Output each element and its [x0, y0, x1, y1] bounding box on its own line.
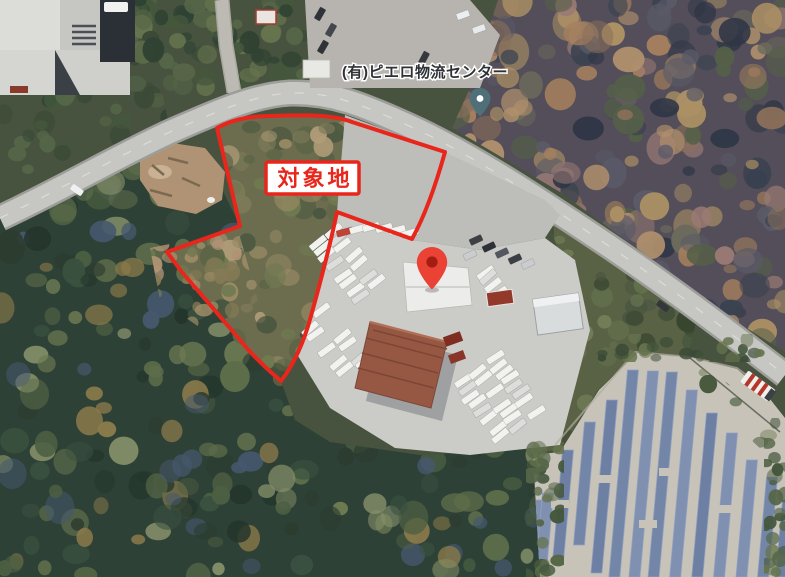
tree-canopy-blob [537, 451, 550, 466]
tree-canopy-blob [697, 25, 712, 35]
tree-canopy-blob [719, 18, 751, 46]
tree-canopy-blob [454, 491, 484, 512]
tree-canopy-blob [264, 263, 285, 288]
tree-canopy-blob [770, 417, 780, 429]
tree-canopy-blob [208, 537, 223, 548]
tree-canopy-blob [486, 490, 509, 506]
tree-canopy-blob [710, 129, 739, 148]
site-label-text: 対象地 [277, 166, 352, 191]
tree-canopy-blob [721, 153, 737, 167]
tree-canopy-blob [548, 482, 561, 491]
tree-canopy-blob [626, 311, 644, 326]
tree-canopy-blob [650, 354, 661, 362]
tree-canopy-blob [94, 497, 109, 514]
tree-canopy-blob [534, 487, 543, 496]
tree-canopy-blob [163, 75, 178, 91]
tree-canopy-blob [314, 136, 334, 157]
tree-canopy-blob [717, 342, 728, 355]
tree-canopy-blob [290, 555, 313, 575]
tree-canopy-blob [49, 485, 62, 498]
tree-canopy-blob [90, 221, 117, 243]
tree-canopy-blob [98, 421, 116, 437]
tree-canopy-blob [739, 64, 766, 89]
tree-canopy-blob [193, 69, 217, 86]
red-white-hut [256, 10, 276, 24]
tree-canopy-blob [65, 442, 93, 462]
tree-canopy-blob [433, 516, 451, 530]
tree-canopy-blob [110, 284, 127, 298]
tree-canopy-blob [660, 225, 672, 233]
tree-canopy-blob [514, 100, 533, 116]
tree-canopy-blob [252, 49, 271, 66]
tree-canopy-blob [768, 452, 781, 463]
tree-canopy-blob [319, 123, 336, 134]
tree-canopy-blob [511, 136, 539, 160]
tree-canopy-blob [519, 71, 543, 99]
gray-building [533, 293, 584, 335]
tree-canopy-blob [197, 242, 205, 249]
tree-canopy-blob [640, 192, 669, 220]
tree-canopy-blob [544, 148, 556, 160]
tree-canopy-blob [40, 263, 53, 272]
tree-canopy-blob [752, 3, 782, 34]
tree-canopy-blob [501, 50, 519, 65]
tree-canopy-blob [582, 20, 613, 53]
tree-canopy-blob [573, 117, 604, 141]
tree-canopy-blob [420, 542, 435, 556]
tree-canopy-blob [229, 485, 252, 505]
tree-canopy-blob [38, 355, 56, 372]
satellite-map[interactable]: 対象地 (有)ピエロ物流センター [0, 0, 785, 577]
tree-canopy-blob [539, 564, 555, 576]
tree-canopy-blob [170, 15, 188, 29]
tree-canopy-blob [281, 52, 301, 68]
tree-canopy-blob [257, 316, 277, 334]
tree-canopy-blob [62, 544, 90, 564]
tree-canopy-blob [266, 149, 282, 161]
tree-canopy-blob [650, 98, 679, 117]
tree-canopy-blob [503, 477, 522, 490]
tree-canopy-blob [740, 273, 770, 298]
tree-canopy-blob [284, 522, 299, 535]
tree-canopy-blob [212, 563, 224, 576]
tree-canopy-blob [178, 294, 193, 309]
tree-canopy-blob [165, 210, 189, 235]
tree-canopy-blob [177, 478, 199, 495]
tree-canopy-blob [279, 4, 292, 17]
tree-canopy-blob [715, 46, 735, 67]
tree-canopy-blob [24, 226, 51, 251]
tree-canopy-blob [683, 166, 695, 176]
tree-canopy-blob [26, 273, 48, 287]
tree-canopy-blob [0, 428, 29, 454]
tree-canopy-blob [261, 25, 281, 43]
tree-canopy-blob [320, 506, 342, 531]
tree-canopy-blob [169, 345, 186, 364]
tree-canopy-blob [276, 501, 291, 515]
tree-canopy-blob [538, 45, 556, 60]
tree-canopy-blob [417, 457, 435, 474]
tree-canopy-blob [242, 559, 260, 574]
tree-canopy-blob [244, 155, 255, 164]
satellite-imagery: 対象地 (有)ピエロ物流センター [0, 0, 785, 577]
tree-canopy-blob [269, 399, 284, 412]
tree-canopy-blob [76, 528, 93, 547]
tree-canopy-blob [30, 462, 50, 480]
tree-canopy-blob [279, 139, 292, 149]
tree-canopy-blob [733, 248, 763, 273]
tree-canopy-blob [85, 305, 113, 326]
tree-canopy-blob [473, 517, 487, 529]
tree-canopy-blob [766, 532, 780, 545]
tree-canopy-blob [658, 145, 673, 159]
tree-canopy-blob [551, 162, 581, 184]
tree-canopy-blob [212, 240, 225, 250]
tree-canopy-blob [699, 369, 707, 377]
panel-row-gap [659, 468, 677, 476]
tree-canopy-blob [617, 110, 633, 121]
tree-canopy-blob [148, 417, 163, 434]
tree-canopy-blob [281, 329, 296, 340]
tree-canopy-blob [8, 146, 26, 161]
tree-canopy-blob [463, 558, 475, 572]
tree-canopy-blob [657, 0, 672, 17]
tree-canopy-blob [231, 462, 247, 474]
tree-canopy-blob [48, 330, 68, 345]
tree-canopy-blob [449, 514, 462, 527]
tree-canopy-blob [739, 200, 755, 210]
tree-canopy-blob [677, 100, 706, 128]
tree-canopy-blob [35, 431, 58, 457]
tree-canopy-blob [771, 567, 782, 577]
tree-canopy-blob [197, 45, 217, 64]
tree-canopy-blob [550, 555, 566, 567]
tree-canopy-blob [112, 114, 133, 129]
tree-canopy-blob [490, 107, 504, 121]
tree-canopy-blob [647, 342, 659, 352]
red-container [10, 86, 28, 93]
tree-canopy-blob [81, 274, 98, 287]
tree-canopy-blob [54, 145, 71, 161]
tree-canopy-blob [159, 460, 181, 483]
tree-canopy-blob [536, 519, 544, 526]
tree-canopy-blob [553, 445, 566, 454]
tree-canopy-blob [537, 537, 549, 549]
tree-canopy-blob [691, 206, 711, 228]
tree-canopy-blob [186, 248, 198, 257]
marker-inner-circle [426, 256, 437, 267]
tree-canopy-blob [99, 116, 111, 126]
tree-canopy-blob [143, 37, 165, 62]
tree-canopy-blob [94, 470, 115, 493]
place-pin-dot [477, 95, 484, 102]
tree-canopy-blob [20, 379, 49, 410]
tree-canopy-blob [212, 486, 230, 505]
tree-canopy-blob [746, 160, 759, 170]
tree-canopy-blob [199, 443, 217, 457]
site-label: 対象地 [266, 162, 359, 194]
tree-canopy-blob [46, 279, 60, 294]
tree-canopy-blob [293, 131, 310, 144]
tree-canopy-blob [131, 535, 145, 545]
tree-canopy-blob [189, 270, 202, 281]
tree-canopy-blob [175, 308, 189, 324]
topleft-buildings [0, 0, 135, 95]
tree-canopy-blob [660, 337, 674, 348]
tree-canopy-blob [686, 87, 703, 101]
tree-canopy-blob [22, 164, 34, 174]
small-white-building [303, 60, 330, 78]
tree-canopy-blob [68, 311, 82, 324]
tree-canopy-blob [772, 463, 784, 476]
tree-canopy-blob [221, 285, 236, 297]
tree-canopy-blob [694, 2, 716, 24]
tree-canopy-blob [233, 250, 241, 256]
panel-row-gap [596, 475, 614, 483]
tree-canopy-blob [576, 66, 597, 81]
tree-canopy-blob [738, 98, 753, 111]
tree-canopy-blob [237, 433, 256, 451]
tree-canopy-blob [767, 299, 781, 309]
tree-canopy-blob [45, 307, 61, 325]
tree-canopy-blob [542, 495, 552, 503]
tree-canopy-blob [583, 165, 609, 191]
tree-canopy-blob [286, 27, 303, 45]
tree-canopy-blob [143, 311, 160, 329]
tree-canopy-blob [77, 363, 91, 376]
tree-canopy-blob [682, 332, 698, 351]
tree-canopy-blob [630, 294, 643, 307]
tree-canopy-blob [657, 125, 674, 137]
tree-canopy-blob [110, 104, 122, 115]
tree-canopy-blob [139, 337, 151, 350]
tree-canopy-blob [121, 223, 136, 240]
tree-canopy-blob [153, 505, 182, 530]
tree-canopy-blob [242, 121, 261, 133]
tree-canopy-blob [483, 534, 509, 561]
tree-canopy-blob [597, 350, 607, 357]
tree-canopy-blob [118, 328, 132, 339]
panel-row-gap [716, 505, 734, 513]
tree-canopy-blob [613, 47, 645, 73]
poi-label[interactable]: (有)ピエロ物流センター [342, 63, 508, 81]
tree-canopy-blob [625, 156, 639, 167]
tree-canopy-blob [260, 443, 279, 464]
tree-canopy-blob [715, 246, 735, 265]
tree-canopy-blob [270, 230, 282, 243]
tree-canopy-blob [452, 456, 468, 468]
tree-canopy-blob [695, 351, 704, 362]
tree-canopy-blob [225, 303, 239, 318]
tree-canopy-blob [615, 344, 629, 357]
tree-canopy-blob [169, 33, 186, 48]
tree-canopy-blob [188, 362, 210, 376]
tree-canopy-blob [90, 263, 106, 277]
tree-canopy-blob [774, 508, 785, 517]
tree-canopy-blob [214, 269, 227, 285]
tree-canopy-blob [674, 184, 692, 203]
tree-canopy-blob [24, 536, 40, 555]
tree-canopy-blob [719, 173, 737, 189]
tree-canopy-blob [687, 244, 718, 266]
tree-canopy-blob [682, 49, 699, 64]
tree-canopy-blob [227, 520, 251, 542]
tree-canopy-blob [723, 93, 737, 102]
tree-canopy-blob [741, 332, 754, 347]
tree-canopy-blob [723, 279, 743, 301]
tree-canopy-blob [246, 280, 257, 290]
tree-canopy-blob [161, 420, 182, 442]
tree-canopy-blob [521, 549, 534, 564]
tree-canopy-blob [51, 204, 76, 222]
panel-row-gap [639, 520, 657, 528]
tree-canopy-blob [185, 394, 209, 413]
tree-canopy-blob [337, 448, 354, 466]
tree-canopy-blob [610, 206, 624, 222]
tree-canopy-blob [155, 10, 168, 26]
tree-canopy-blob [597, 315, 611, 329]
tree-canopy-blob [730, 397, 742, 406]
tree-canopy-blob [495, 559, 512, 576]
tree-canopy-blob [109, 437, 139, 465]
tree-canopy-blob [421, 474, 438, 493]
tree-canopy-blob [305, 491, 319, 506]
tree-canopy-blob [614, 74, 646, 101]
tree-canopy-blob [268, 465, 295, 493]
warehouse-roof [0, 0, 60, 50]
tree-canopy-blob [699, 375, 717, 394]
tree-canopy-blob [363, 493, 386, 514]
white-truck [104, 2, 128, 12]
tree-canopy-blob [34, 120, 47, 130]
tree-canopy-blob [34, 325, 50, 337]
tree-canopy-blob [96, 402, 112, 414]
tree-canopy-blob [545, 78, 576, 110]
tree-canopy-blob [144, 361, 161, 376]
tree-canopy-blob [754, 349, 765, 357]
tree-canopy-blob [86, 387, 103, 401]
tree-canopy-blob [768, 489, 783, 505]
tree-canopy-blob [165, 493, 181, 506]
tree-canopy-blob [390, 495, 408, 515]
tree-canopy-blob [607, 84, 619, 98]
tree-canopy-blob [596, 272, 606, 281]
tree-canopy-blob [38, 560, 52, 575]
tree-canopy-blob [37, 130, 49, 141]
tree-canopy-blob [220, 361, 250, 392]
tree-canopy-blob [697, 55, 717, 71]
tree-canopy-blob [261, 131, 277, 142]
tree-canopy-blob [184, 41, 196, 55]
tree-canopy-blob [23, 129, 35, 142]
small-white-structure [207, 197, 215, 203]
red-shed [486, 289, 514, 306]
tree-canopy-blob [22, 504, 40, 518]
tree-canopy-blob [115, 261, 131, 276]
